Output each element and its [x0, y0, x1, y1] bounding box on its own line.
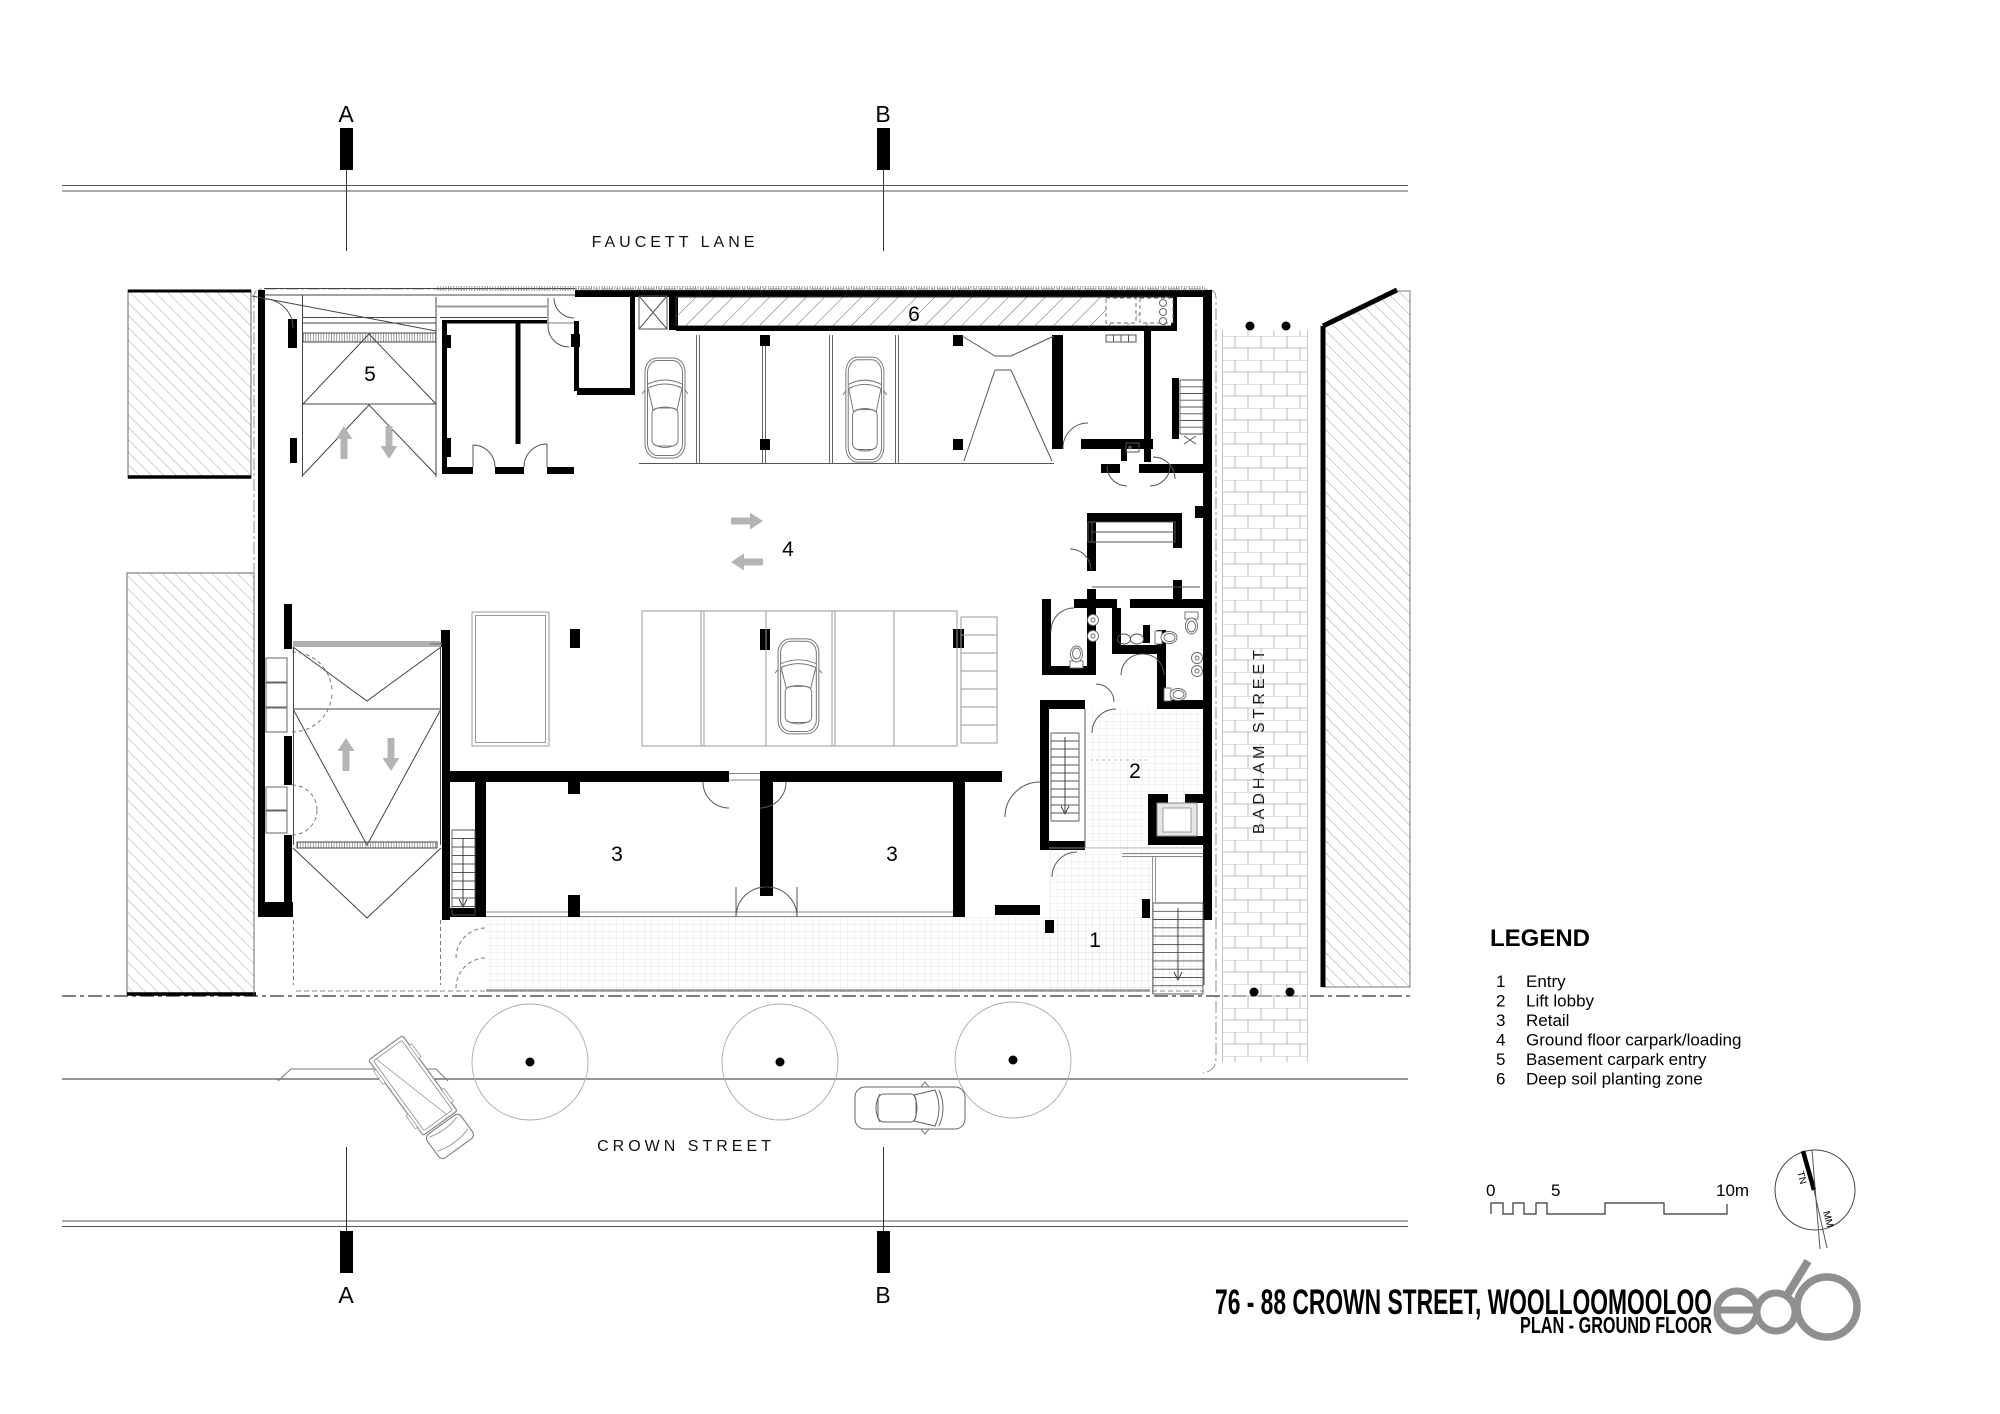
svg-text:Retail: Retail — [1526, 1011, 1569, 1030]
svg-text:5: 5 — [1496, 1050, 1505, 1069]
svg-text:A: A — [338, 101, 354, 127]
svg-text:PLAN - GROUND FLOOR: PLAN - GROUND FLOOR — [1520, 1312, 1712, 1338]
svg-text:A: A — [338, 1282, 354, 1308]
svg-text:2: 2 — [1129, 760, 1141, 783]
svg-text:B: B — [875, 1282, 890, 1308]
svg-text:3: 3 — [886, 843, 898, 866]
svg-text:Lift lobby: Lift lobby — [1526, 992, 1595, 1011]
svg-text:LEGEND: LEGEND — [1490, 925, 1590, 952]
svg-text:5: 5 — [364, 363, 376, 386]
svg-text:10m: 10m — [1716, 1181, 1749, 1200]
svg-text:2: 2 — [1496, 992, 1505, 1011]
svg-text:0: 0 — [1486, 1181, 1495, 1200]
svg-text:6: 6 — [908, 303, 920, 326]
svg-text:1: 1 — [1496, 972, 1505, 991]
svg-text:FAUCETT LANE: FAUCETT LANE — [592, 234, 759, 251]
svg-text:6: 6 — [1496, 1070, 1505, 1089]
svg-text:CROWN STREET: CROWN STREET — [597, 1138, 775, 1155]
svg-text:Deep soil planting zone: Deep soil planting zone — [1526, 1070, 1703, 1089]
svg-text:3: 3 — [611, 843, 623, 866]
svg-text:Basement carpark entry: Basement carpark entry — [1526, 1050, 1707, 1069]
svg-text:1: 1 — [1089, 929, 1101, 952]
svg-text:3: 3 — [1496, 1011, 1505, 1030]
svg-text:4: 4 — [1496, 1031, 1505, 1050]
svg-text:Entry: Entry — [1526, 972, 1566, 991]
svg-text:B: B — [875, 101, 890, 127]
svg-text:5: 5 — [1551, 1181, 1560, 1200]
svg-text:Ground floor carpark/loading: Ground floor carpark/loading — [1526, 1031, 1741, 1050]
svg-text:4: 4 — [782, 538, 794, 561]
